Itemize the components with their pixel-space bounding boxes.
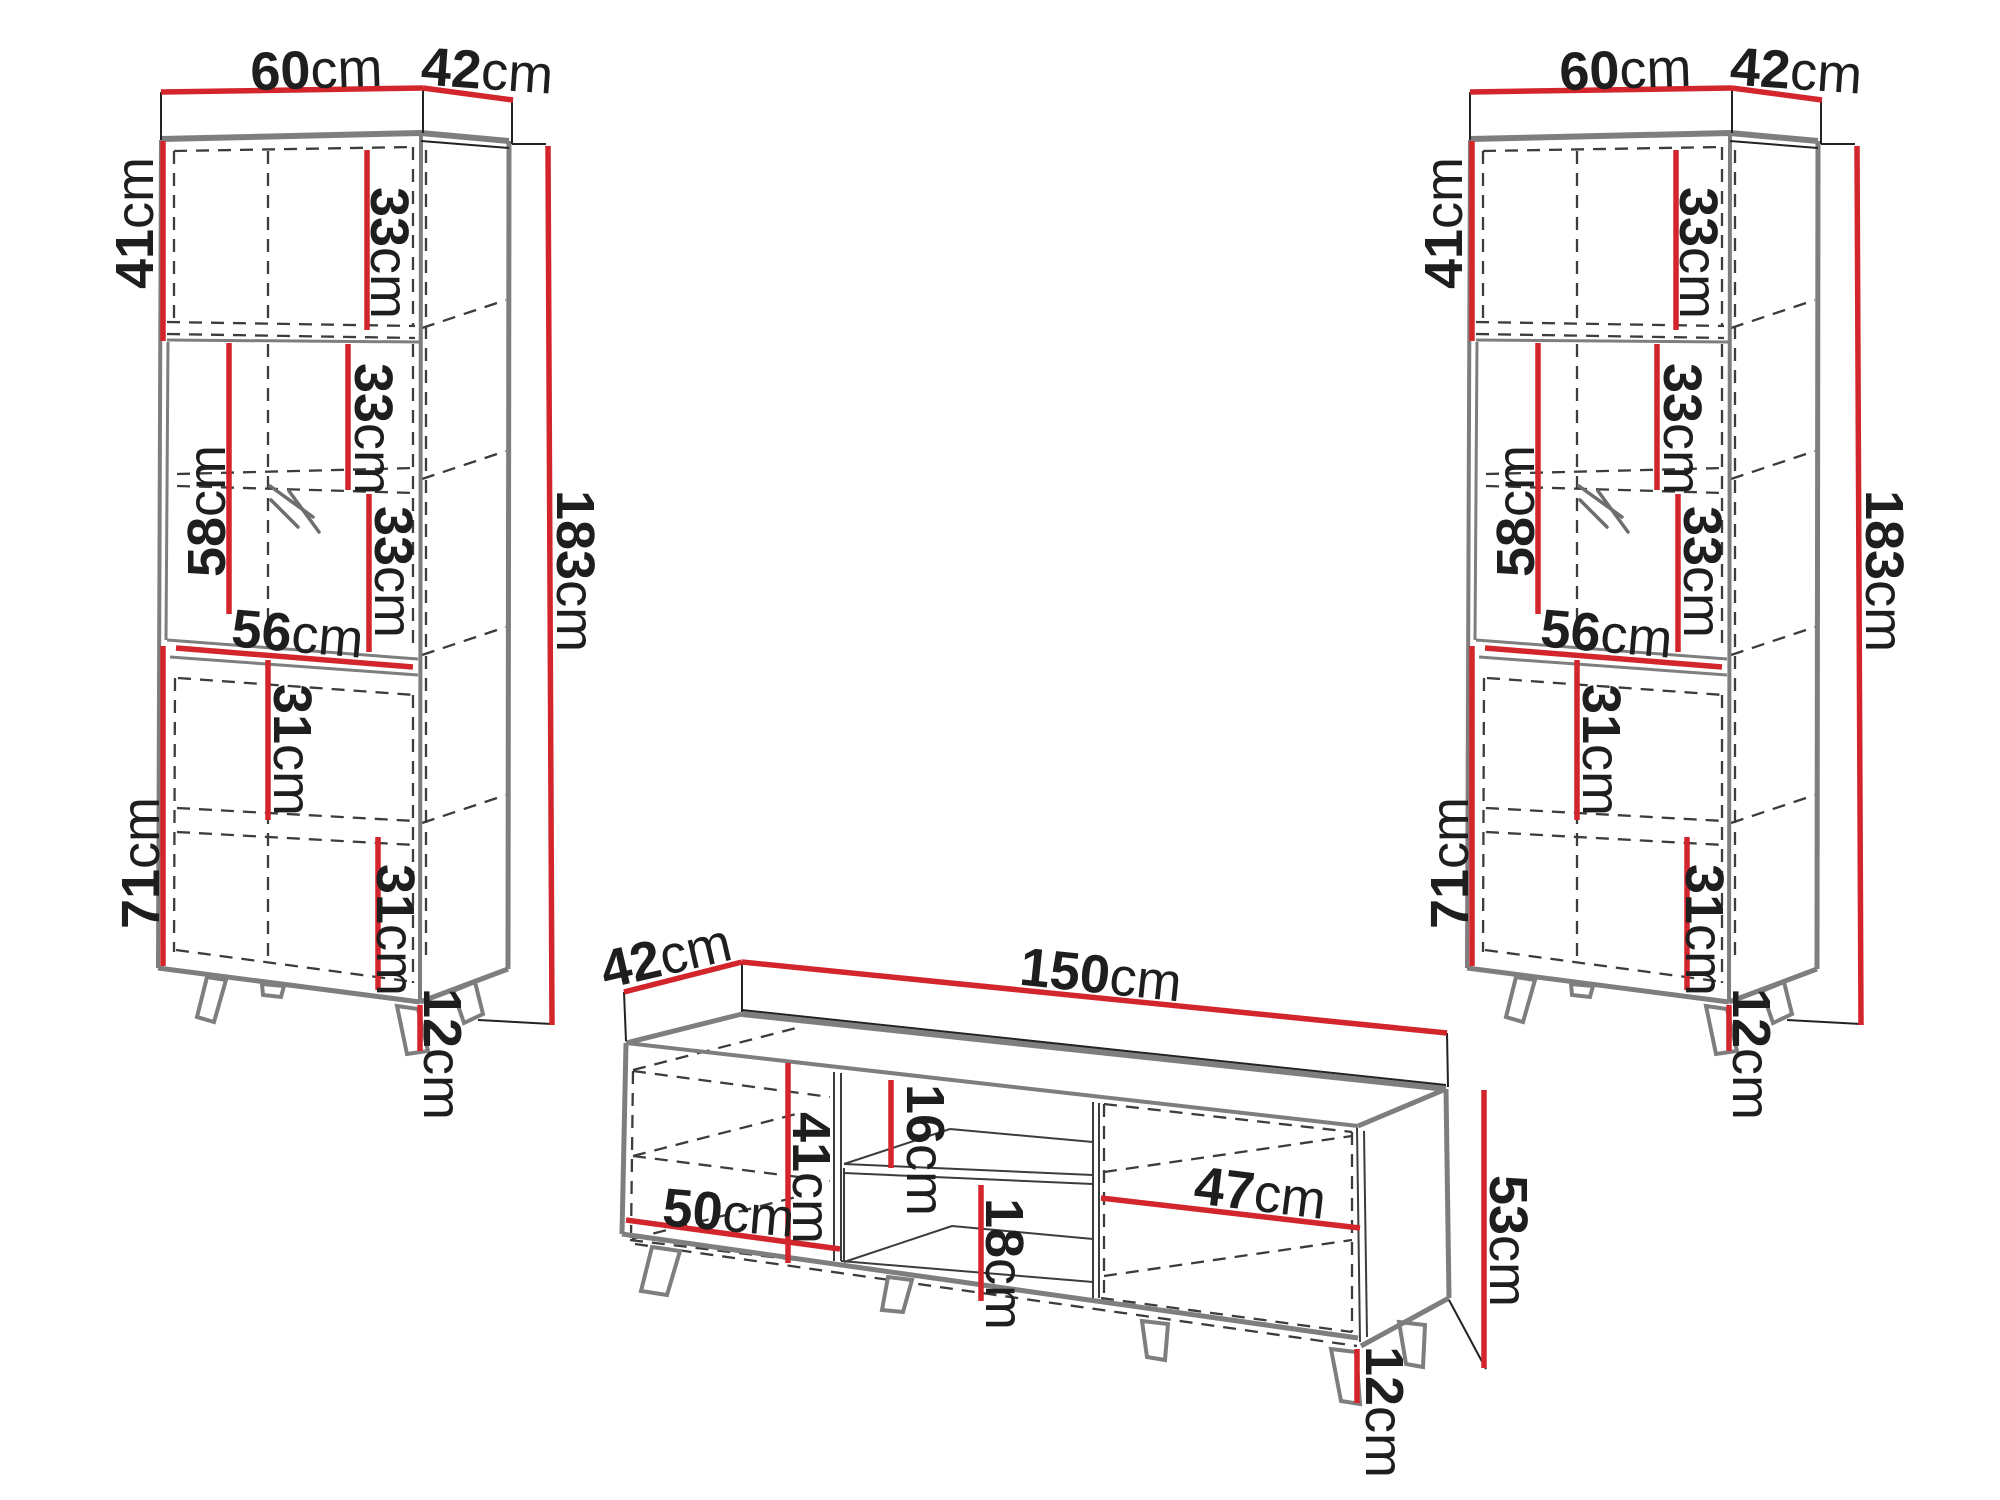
svg-text:41cm: 41cm bbox=[781, 1112, 841, 1244]
svg-text:50cm: 50cm bbox=[660, 1177, 797, 1248]
svg-text:53cm: 53cm bbox=[1478, 1175, 1538, 1307]
svg-text:16cm: 16cm bbox=[895, 1084, 955, 1216]
svg-text:18cm: 18cm bbox=[974, 1198, 1034, 1330]
svg-text:12cm: 12cm bbox=[1354, 1346, 1414, 1478]
